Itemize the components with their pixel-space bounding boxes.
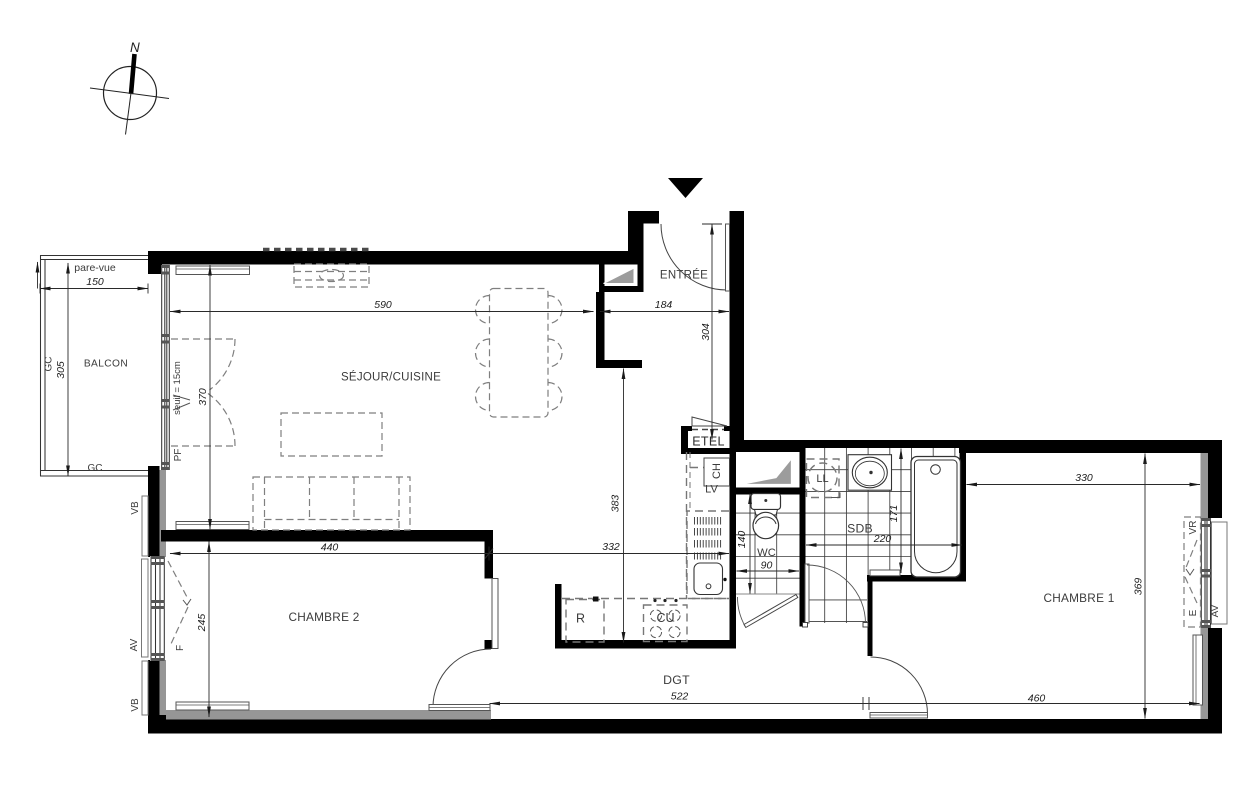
svg-text:304: 304 [700,323,712,341]
svg-text:590: 590 [374,299,392,311]
svg-text:BALCON: BALCON [84,359,128,370]
svg-text:E: E [1188,609,1199,616]
svg-text:R: R [576,612,585,626]
svg-text:VB: VB [130,698,141,712]
svg-text:ETEL: ETEL [692,435,724,449]
svg-text:CU: CU [656,611,674,625]
svg-text:90: 90 [761,560,773,572]
svg-text:LL: LL [816,473,828,485]
svg-text:150: 150 [86,276,104,288]
svg-text:F: F [175,645,186,651]
svg-text:N: N [130,40,140,55]
svg-text:184: 184 [655,299,673,311]
svg-text:383: 383 [610,495,622,513]
svg-text:220: 220 [873,533,892,545]
svg-text:440: 440 [321,542,339,554]
svg-text:370: 370 [197,388,209,406]
svg-text:171: 171 [888,505,900,523]
svg-text:CHAMBRE 2: CHAMBRE 2 [288,610,359,624]
svg-text:WC: WC [757,547,776,559]
svg-text:PF: PF [173,449,184,462]
svg-text:seuil = 15cm: seuil = 15cm [172,361,183,415]
svg-text:GC: GC [88,463,103,474]
svg-text:460: 460 [1028,693,1046,705]
svg-text:332: 332 [602,541,620,553]
svg-text:522: 522 [671,691,689,703]
svg-text:330: 330 [1075,472,1093,484]
svg-text:CHAMBRE 1: CHAMBRE 1 [1043,591,1114,605]
svg-text:LV: LV [705,484,718,496]
svg-text:245: 245 [196,614,208,633]
svg-text:VB: VB [130,501,141,515]
svg-text:ENTRÉE: ENTRÉE [660,269,708,282]
svg-text:VR: VR [1188,521,1199,535]
svg-text:305: 305 [55,361,67,379]
svg-text:140: 140 [736,531,748,549]
svg-text:AV: AV [1210,604,1221,617]
svg-text:SDB: SDB [847,522,873,536]
svg-text:pare-vue: pare-vue [74,262,116,274]
svg-text:369: 369 [1133,578,1145,596]
svg-text:CH: CH [711,463,723,479]
svg-text:GC: GC [44,357,55,372]
svg-text:AV: AV [129,638,140,651]
svg-text:DGT: DGT [663,673,690,687]
svg-text:SÉJOUR/CUISINE: SÉJOUR/CUISINE [341,371,441,384]
